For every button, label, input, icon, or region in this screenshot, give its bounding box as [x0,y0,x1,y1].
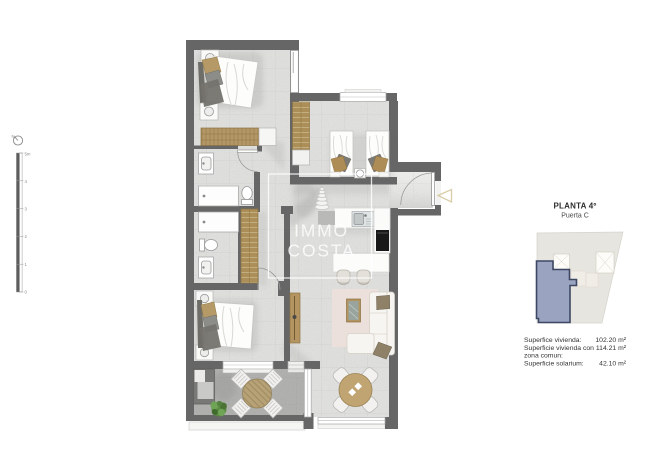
svg-text:PLANTA 4º: PLANTA 4º [554,202,597,211]
svg-text:Superficie vivienda con: Superficie vivienda con [524,345,594,352]
svg-text:zona comun:: zona comun: [524,353,563,360]
svg-text:IMMO: IMMO [294,221,349,241]
svg-text:N: N [12,134,15,139]
svg-text:114.21 m²: 114.21 m² [596,345,627,352]
svg-text:42.10 m²: 42.10 m² [599,361,627,368]
svg-text:Puerta C: Puerta C [561,213,589,220]
svg-text:102.20 m²: 102.20 m² [595,337,626,344]
svg-text:COSTA: COSTA [288,241,356,261]
svg-text:5m: 5m [25,152,31,157]
svg-text:Superfice vivienda:: Superfice vivienda: [524,337,582,344]
svg-text:Superficie solarium:: Superficie solarium: [524,361,584,368]
